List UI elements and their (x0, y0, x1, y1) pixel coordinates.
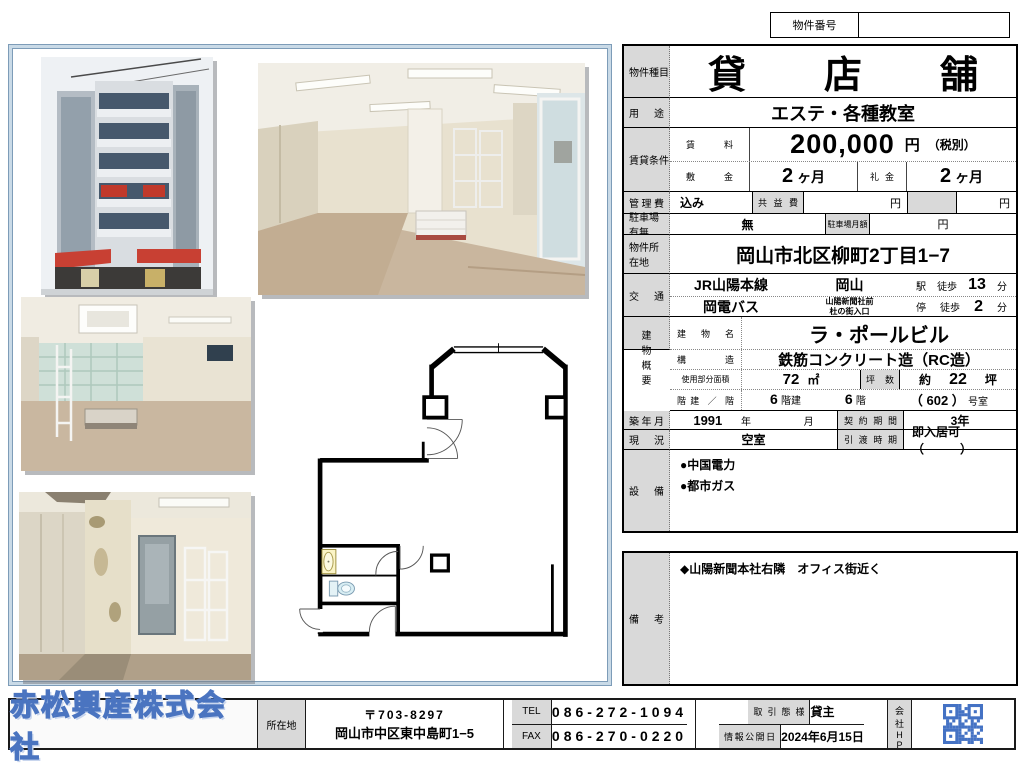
area-value: 72 ㎡ (742, 370, 860, 389)
location-value: 岡山市北区柳町2丁目1−7 (670, 235, 1016, 273)
usage-row: エステ・各種教室 (670, 98, 1016, 128)
built-label: 築年月 (624, 411, 670, 430)
usage-value: エステ・各種教室 (670, 98, 1016, 127)
parking-row: 無 駐車場月額 円 (670, 214, 1016, 235)
rent-value: 200,000 円 （税別） (750, 128, 1016, 161)
type-value: 貸店舗 (670, 46, 1016, 97)
qr-cell (912, 700, 1014, 748)
interior-photo-window (21, 297, 251, 471)
building-label: 建物概要 (624, 317, 670, 350)
fax-label: FAX (512, 725, 552, 749)
transit-walk-2: 停 徒歩 2 分 (907, 297, 1016, 316)
transit-label: 交通 (624, 274, 670, 317)
usage-label: 用途 (624, 98, 670, 128)
common-fee-yen: 円 (804, 192, 907, 213)
floors-value: 6 階建 6 階 （ 602 ） 号室 (742, 390, 1016, 410)
interior-photo-pillar (19, 492, 251, 680)
rent-tax-note: （税別） (928, 136, 976, 153)
publish-date-row: 情報公開日 2024年6月15日 (719, 724, 864, 749)
handover-label: 引渡時期 (837, 430, 904, 449)
property-details-table: 物件種目 貸店舗 用途 エステ・各種教室 賃貸条件 賃料 200,000 円 （… (622, 44, 1018, 533)
tsubo-label: 坪数 (860, 370, 900, 389)
company-name: 赤松興産株式会社 (10, 700, 258, 748)
floor-plan (295, 331, 597, 677)
status-value: 空室 (670, 430, 837, 449)
floors-row: 階建 ／ 階 6 階建 6 階 （ 602 ） 号室 (670, 390, 1016, 411)
remarks-text: ◆山陽新聞本社右隣 オフィス街近く (670, 553, 1016, 684)
equipment-item: ●都市ガス (680, 476, 735, 497)
photo-panel-inner (12, 48, 608, 682)
status-row: 空室 引渡時期 即入居可 （ ） (670, 430, 1016, 450)
parking-value: 無 (670, 214, 825, 234)
phone-block: TEL 086-272-1094 FAX 086-270-0220 (504, 700, 696, 748)
company-address-label: 所在地 (258, 700, 306, 748)
deposit-label: 敷金 (670, 162, 750, 191)
photo-panel (8, 44, 612, 686)
remarks-box: 備考 ◆山陽新聞本社右隣 オフィス街近く (622, 551, 1018, 686)
type-label: 物件種目 (624, 46, 670, 98)
handover-value: 即入居可 （ ） (904, 430, 1016, 449)
equipment-list: ●中国電力 ●都市ガス (670, 450, 745, 531)
property-number-box: 物件番号 (770, 12, 1010, 38)
management-value: 込み (670, 192, 752, 213)
parking-label: 駐車場有無 (624, 214, 670, 235)
company-hp-label: 会社HP (888, 700, 912, 748)
publish-date-label: 情報公開日 (719, 725, 781, 749)
contract-label: 契約期間 (837, 411, 904, 429)
transit-row-2: 岡電バス 山陽新聞社前 杜の街入口 停 徒歩 2 分 (670, 297, 1016, 317)
transit-row-1: JR山陽本線 岡山 駅 徒歩 13 分 (670, 274, 1016, 297)
transit-walk-1: 駅 徒歩 13 分 (907, 274, 1016, 296)
property-sheet: 物件番号 (0, 0, 1024, 766)
building-name-row: 建物名 ラ・ポールビル (670, 317, 1016, 350)
floors-label: 階建 ／ 階 (670, 390, 742, 410)
built-value: 1991 年 月 (670, 411, 837, 429)
structure-label: 構造 (670, 350, 742, 369)
building-exterior-photo (41, 57, 213, 295)
deposit-value: 2 ヶ月 (750, 162, 857, 191)
parking-monthly-label: 駐車場月額 (825, 214, 870, 234)
building-name-value: ラ・ポールビル (742, 317, 1016, 349)
qr-code-icon (943, 704, 983, 744)
tsubo-value: 約 22 坪 (900, 370, 1016, 389)
interior-photo-main (258, 63, 585, 295)
lease-label: 賃貸条件 (624, 128, 670, 192)
transit-station-1: 岡山 (792, 274, 907, 296)
building-name-label: 建物名 (670, 317, 742, 349)
company-address-text: 岡山市中区東中島町1−5 (335, 723, 474, 742)
fax-row: FAX 086-270-0220 (512, 724, 687, 749)
deal-type-label: 取引態様 (748, 700, 810, 724)
area-label: 使用部分面積 (670, 370, 742, 389)
deal-type-row: 取引態様 貸主 (748, 700, 834, 724)
rent-amount: 200,000 (790, 129, 895, 160)
deal-type-value: 貸主 (810, 700, 834, 724)
equipment-row: ●中国電力 ●都市ガス (670, 450, 1016, 531)
transit-station-2: 山陽新聞社前 杜の街入口 (792, 297, 907, 316)
equipment-label: 設備 (624, 450, 670, 531)
rent-row: 賃料 200,000 円 （税別） (670, 128, 1016, 162)
transit-line-2: 岡電バス (670, 297, 792, 316)
management-blank-cell (907, 192, 957, 213)
tel-row: TEL 086-272-1094 (512, 700, 687, 724)
structure-value: 鉄筋コンクリート造（RC造） (742, 350, 1016, 369)
tel-label: TEL (512, 700, 552, 724)
company-address: 〒703-8297 岡山市中区東中島町1−5 (306, 700, 504, 748)
equipment-item: ●中国電力 (680, 455, 735, 476)
deal-block: 取引態様 貸主 情報公開日 2024年6月15日 (696, 700, 888, 748)
parking-monthly-yen: 円 (870, 214, 1016, 234)
rent-unit: 円 (905, 134, 920, 155)
company-postal-code: 〒703-8297 (364, 706, 445, 723)
deposit-row: 敷金 2 ヶ月 礼金 2 ヶ月 (670, 162, 1016, 192)
rent-label: 賃料 (670, 128, 750, 161)
location-row: 岡山市北区柳町2丁目1−7 (670, 235, 1016, 274)
key-money-value: 2 ヶ月 (907, 162, 1016, 191)
status-label: 現況 (624, 430, 670, 450)
structure-row: 構造 鉄筋コンクリート造（RC造） (670, 350, 1016, 370)
management-yen2: 円 (957, 192, 1016, 213)
remarks-label: 備考 (624, 553, 670, 684)
tel-number: 086-272-1094 (552, 700, 687, 724)
location-label: 物件所在地 (624, 235, 670, 274)
property-number-value (859, 13, 1009, 37)
type-row: 貸店舗 (670, 46, 1016, 98)
common-fee-label: 共益費 (752, 192, 804, 213)
key-money-label: 礼金 (857, 162, 907, 191)
property-number-label: 物件番号 (771, 13, 859, 37)
transit-line-1: JR山陽本線 (670, 274, 792, 296)
fax-number: 086-270-0220 (552, 725, 687, 749)
management-row: 込み 共益費 円 円 (670, 192, 1016, 214)
area-row: 使用部分面積 72 ㎡ 坪数 約 22 坪 (670, 370, 1016, 390)
company-footer: 赤松興産株式会社 所在地 〒703-8297 岡山市中区東中島町1−5 TEL … (8, 698, 1016, 750)
publish-date-value: 2024年6月15日 (781, 725, 864, 749)
